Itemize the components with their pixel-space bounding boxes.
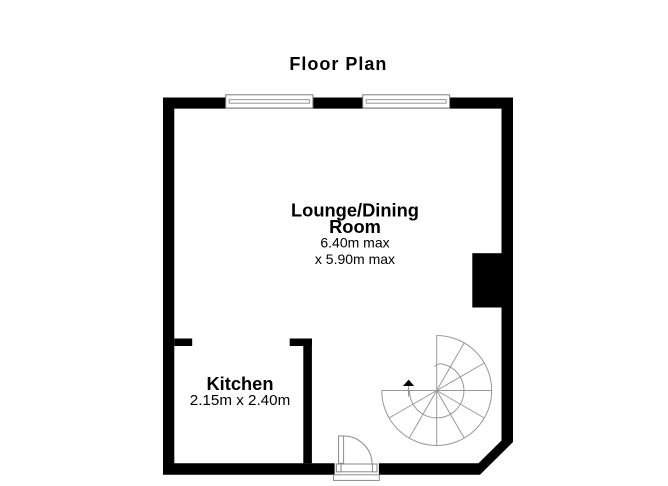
- svg-text:2.15m x 2.40m: 2.15m x 2.40m: [190, 392, 290, 409]
- svg-text:Floor Plan: Floor Plan: [289, 54, 387, 74]
- svg-text:x 5.90m max: x 5.90m max: [315, 251, 395, 267]
- svg-text:6.40m max: 6.40m max: [320, 235, 389, 251]
- svg-text:Kitchen: Kitchen: [206, 373, 273, 394]
